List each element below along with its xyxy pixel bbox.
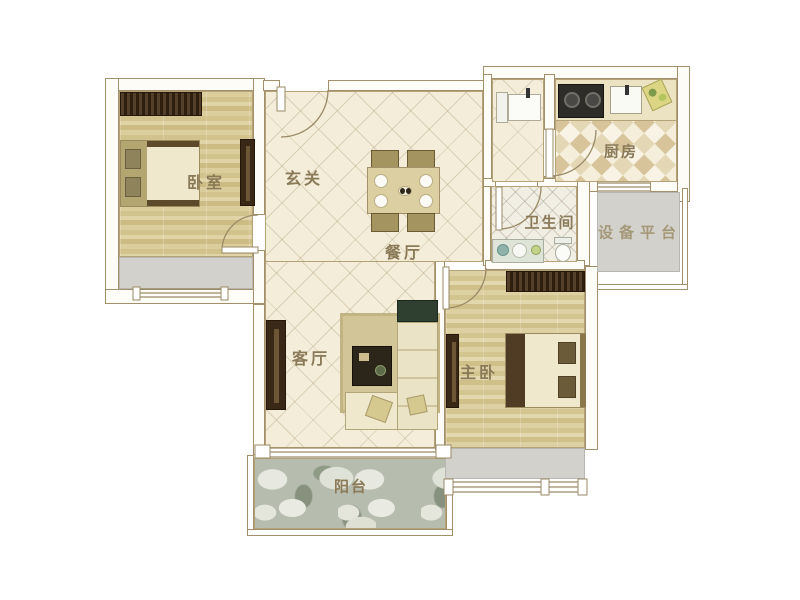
- wall-bedroom-top: [105, 78, 265, 91]
- bedroom-pillow-2: [125, 177, 141, 197]
- floor-plan: 卧室 玄关 餐厅 厨房 卫生间 设备平台 客厅 主卧 阳台: [0, 0, 800, 600]
- wall-bathroom-right: [577, 178, 590, 266]
- washer-body: [508, 94, 541, 121]
- toilet-tank: [554, 237, 572, 244]
- dining-plate-2: [419, 174, 433, 188]
- master-bay-window: [453, 482, 580, 492]
- wall-platform-bottom: [597, 284, 688, 290]
- label-bathroom: 卫生间: [524, 212, 575, 233]
- label-foyer: 玄关: [285, 165, 323, 189]
- master-bed: [505, 333, 586, 408]
- stove-burner-2: [585, 92, 601, 108]
- bedroom-tv-screen: [246, 146, 250, 201]
- wall-hall-column-left: [483, 74, 492, 188]
- dining-center-dot-1: [400, 188, 405, 194]
- kitchen-stove: [558, 84, 604, 118]
- wall-bedroom-bottom: [105, 289, 265, 304]
- dining-center-dot-2: [406, 188, 411, 194]
- bedroom-bay-window-sill: [119, 257, 253, 289]
- kitchen-sink: [610, 86, 642, 114]
- vanity-bottle-2: [531, 245, 541, 255]
- kitchen-door-leaf: [546, 129, 553, 178]
- wall-foyer-top-left: [263, 80, 280, 91]
- master-tv-cabinet: [446, 334, 459, 408]
- label-bedroom: 卧室: [187, 169, 225, 193]
- living-balcony-window: [270, 448, 438, 457]
- label-master-bedroom: 主卧: [460, 359, 498, 383]
- vanity-sink-bowl: [512, 243, 527, 258]
- dining-plate-4: [419, 194, 433, 208]
- wall-foyer-top-right: [328, 80, 485, 91]
- label-living-room: 客厅: [292, 345, 330, 369]
- bedroom-wardrobe: [120, 92, 202, 116]
- bedroom-tv-cabinet: [240, 139, 255, 206]
- kitchen-platform-window: [598, 183, 650, 191]
- dining-table: [367, 167, 440, 214]
- master-headboard: [580, 334, 586, 407]
- wall-bedroom-left: [105, 78, 119, 304]
- wall-balcony-bottom: [247, 529, 453, 536]
- wall-living-west: [253, 304, 265, 455]
- master-bay-window-sill: [445, 448, 585, 479]
- label-dining-room: 餐厅: [385, 239, 423, 263]
- label-kitchen: 厨房: [604, 141, 638, 162]
- master-pillow-2: [558, 376, 576, 398]
- wall-kitchen-left-upper: [544, 74, 555, 130]
- label-equipment-platform: 设备平台: [598, 222, 682, 243]
- cutting-board-veg-1: [647, 87, 658, 98]
- wall-platform-right: [682, 188, 688, 290]
- living-tv-cabinet: [266, 320, 286, 410]
- bedroom-pillow-1: [125, 149, 141, 169]
- wall-kitchen-right: [677, 66, 690, 202]
- wall-master-right: [585, 266, 598, 450]
- hall-washer-sink: [496, 92, 541, 123]
- wall-bathroom-left: [483, 186, 491, 266]
- dining-chair-bottom-right: [407, 213, 435, 232]
- master-wardrobe: [506, 271, 585, 292]
- toilet-bowl: [555, 244, 571, 262]
- coffee-table-decor-2: [375, 365, 386, 376]
- master-bay-post-right: [578, 479, 587, 495]
- kitchen-faucet: [625, 85, 629, 95]
- living-tv-screen: [274, 329, 279, 403]
- bathroom-vanity: [492, 239, 544, 263]
- living-coffee-table: [352, 346, 392, 386]
- washer-faucet: [526, 88, 530, 98]
- wall-balcony-left: [247, 455, 254, 535]
- bedroom-bed-frame-top: [147, 141, 199, 147]
- washer-controls: [496, 92, 508, 123]
- dining-plate-1: [374, 174, 388, 188]
- master-pillow-1: [558, 342, 576, 364]
- bathroom-toilet: [551, 237, 575, 263]
- master-tv-screen: [452, 342, 456, 402]
- dining-chair-bottom-left: [371, 213, 399, 232]
- bedroom-bed-frame-bottom: [147, 200, 199, 206]
- cutting-board-veg-2: [657, 93, 667, 103]
- master-bed-bench: [506, 334, 525, 407]
- coffee-table-decor-1: [359, 353, 369, 361]
- dining-plate-3: [374, 194, 388, 208]
- master-bay-post-mid: [541, 479, 549, 495]
- living-side-console: [397, 300, 438, 322]
- stove-burner-1: [564, 92, 580, 108]
- living-sofa-pillow-2: [406, 394, 427, 415]
- wall-kitchen-top: [483, 66, 690, 79]
- vanity-bottle-1: [497, 244, 509, 256]
- wall-bedroom-right-lower: [253, 250, 265, 304]
- label-balcony: 阳台: [334, 476, 368, 497]
